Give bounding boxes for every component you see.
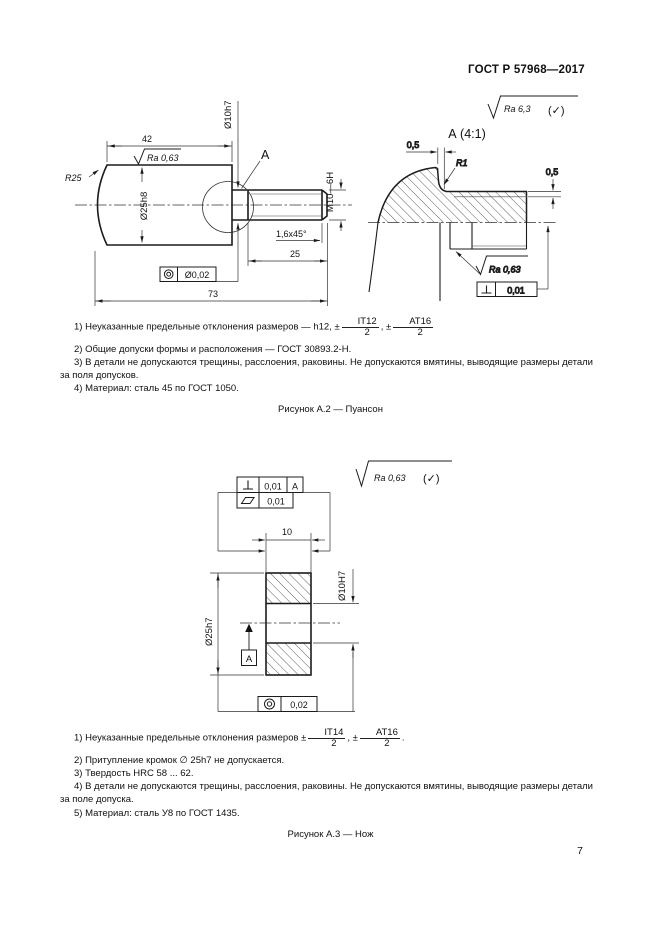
page-number: 7	[570, 845, 590, 857]
note-a3-4: 4) В детали не допускаются трещины, расс…	[60, 780, 601, 806]
coaxiality-value-a2: Ø0,02	[185, 270, 210, 280]
note-a2-1: 1) Неуказанные предельные отклонения раз…	[60, 317, 601, 339]
general-roughness-check-a3: (✓)	[423, 473, 440, 485]
datum-a: А	[242, 624, 257, 666]
punch-main-view	[75, 165, 352, 245]
detail-section-hatch	[378, 168, 527, 223]
general-roughness-check: (✓)	[548, 105, 565, 117]
perpendicularity-datum-ref: А	[292, 482, 298, 492]
dim-d25h7-label: Ø25h7	[204, 617, 215, 646]
note-a2-3: 3) В детали не допускаются трещины, расс…	[60, 356, 601, 382]
note-a3-2: 2) Притупление кромок ∅ 25h7 не допускае…	[60, 754, 601, 767]
dim-d10H7-label: Ø10H7	[337, 571, 348, 601]
dim-hole-d10H7: Ø10H7	[313, 569, 359, 658]
figure-a2-drawing: Ra 6,3 (✓) 42 Ra 0,63 R25	[0, 86, 661, 318]
detail-a-circle	[203, 182, 254, 233]
detail-dim-r1: R1	[456, 158, 468, 168]
dim-10-label: 10	[282, 527, 292, 537]
detail-title: А (4:1)	[448, 127, 486, 141]
punch-detail-view: А (4:1) 0,5 R1 0,5	[368, 127, 561, 301]
notes-figure-a2: 1) Неуказанные предельные отклонения раз…	[60, 317, 601, 396]
perpendicularity-icon	[482, 286, 492, 294]
datum-triangle-icon	[245, 624, 253, 632]
coaxiality-icon	[164, 270, 173, 279]
dim-73: 73	[208, 289, 218, 299]
dim-d10h7: Ø10h7	[223, 100, 234, 129]
dim-thread: M10—6H	[325, 172, 336, 212]
flatness-value: 0,01	[267, 497, 285, 507]
note-a3-1: 1) Неуказанные предельные отклонения раз…	[60, 728, 601, 750]
standard-header: ГОСТ Р 57968—2017	[468, 64, 598, 76]
roughness-top-face: Ra 0,63	[147, 153, 179, 163]
flatness-icon	[242, 498, 255, 504]
note-a2-4: 4) Материал: сталь 45 по ГОСТ 1050.	[60, 382, 601, 395]
caption-figure-a3: Рисунок А.3 — Нож	[0, 829, 661, 840]
general-roughness-value: Ra 6,3	[504, 104, 531, 114]
notes-figure-a3: 1) Неуказанные предельные отклонения раз…	[60, 728, 601, 820]
knife-hatch-bottom	[266, 643, 311, 675]
coaxiality-value-a3: 0,02	[290, 700, 308, 710]
knife-section	[240, 573, 340, 675]
general-roughness-value-a3: Ra 0,63	[374, 473, 406, 483]
dim-25: 25	[290, 249, 300, 259]
perpendicularity-frame-a2: 0,01	[477, 226, 548, 297]
perpendicularity-value-a3: 0,01	[264, 482, 282, 492]
note-a2-2: 2) Общие допуски формы и расположения — …	[60, 343, 601, 356]
general-roughness-mark-a3: Ra 0,63 (✓)	[356, 461, 452, 486]
detail-roughness: Ra 0,63	[489, 265, 521, 275]
knife-hatch-top	[266, 573, 311, 604]
note-a3-3: 3) Твердость HRC 58 ... 62.	[60, 767, 601, 780]
datum-label: А	[246, 654, 253, 665]
caption-figure-a2: Рисунок А.2 — Пуансон	[0, 404, 661, 415]
coaxiality-icon-a3	[265, 699, 275, 709]
perpendicularity-value-a2: 0,01	[507, 286, 525, 296]
detail-dim-05-right: 0,5	[546, 167, 559, 177]
dim-r25: R25	[65, 173, 83, 183]
dim-42: 42	[142, 134, 152, 144]
document-page: ГОСТ Р 57968—2017 Ra 6,3 (✓)	[0, 0, 661, 936]
dim-d25h8: Ø25h8	[139, 192, 150, 221]
detail-ref-label: А	[261, 148, 270, 162]
note-a3-5: 5) Материал: сталь У8 по ГОСТ 1435.	[60, 807, 601, 820]
general-roughness-mark: Ra 6,3 (✓)	[488, 96, 578, 118]
detail-dim-05-top: 0,5	[407, 140, 420, 150]
dim-width-10: 10	[252, 527, 325, 572]
dim-outer-d25h7: Ø25h7	[204, 573, 264, 675]
figure-a3-drawing: Ra 0,63 (✓) 0,01 А 0,01 10	[0, 455, 661, 725]
dim-chamfer: 1,6x45°	[276, 229, 307, 239]
perpendicularity-icon-a3	[243, 481, 253, 490]
